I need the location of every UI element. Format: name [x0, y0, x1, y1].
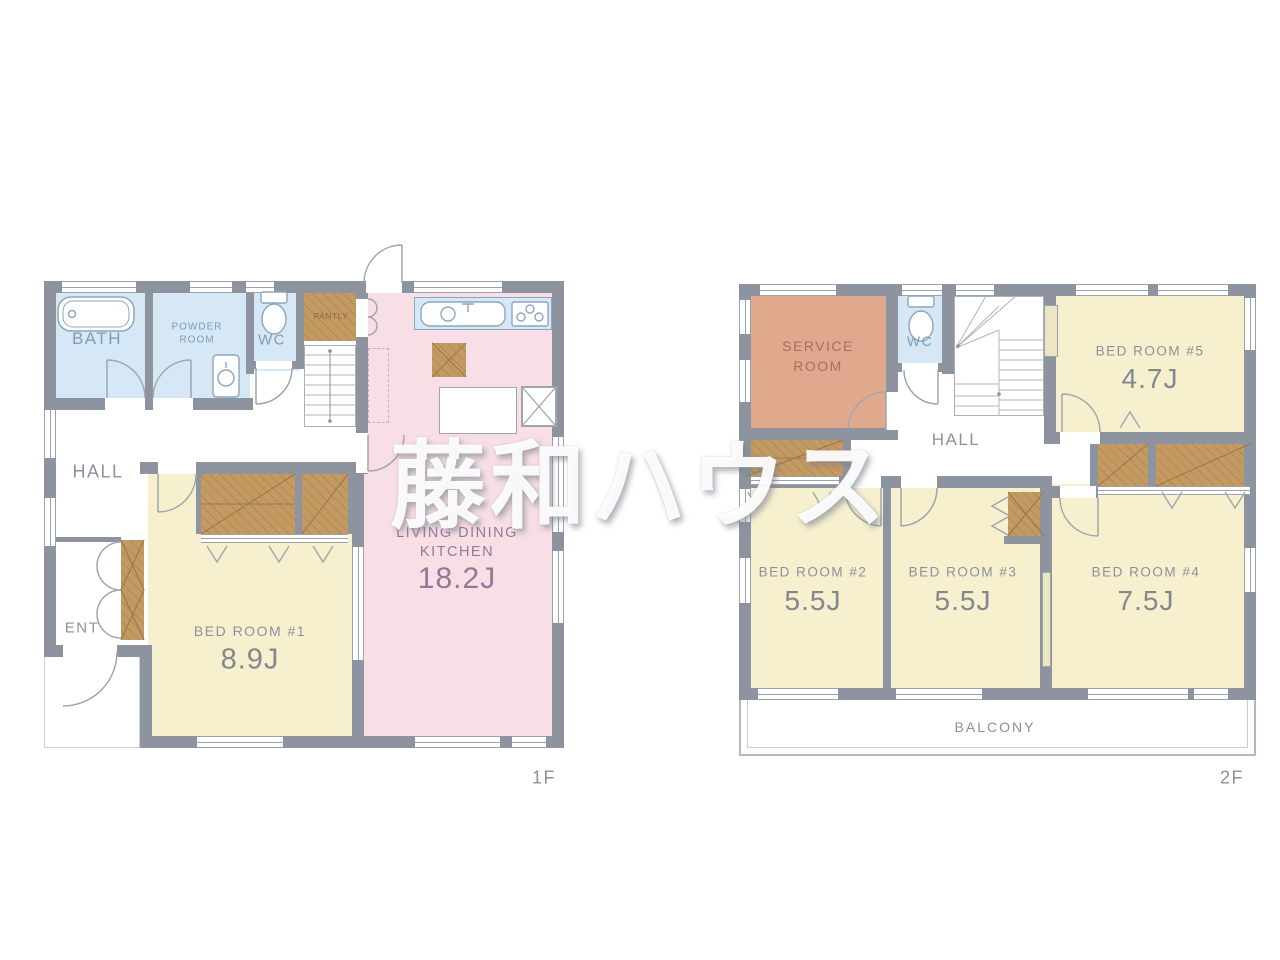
- closet-open-front: [1098, 486, 1250, 495]
- wc2-door-opening: [902, 363, 938, 372]
- wc-label-2f: WC: [907, 333, 933, 349]
- window: [1244, 298, 1256, 350]
- window: [896, 688, 982, 700]
- window: [1158, 284, 1228, 296]
- window: [739, 300, 751, 334]
- floor1-powder-room: [149, 289, 250, 402]
- floor-plan-canvas: BATH POWDER ROOM WC PANTLY HALL ENT BED …: [0, 0, 1280, 960]
- floor1-shoe-closet: [121, 540, 144, 640]
- bedroom1-name-label: BED ROOM #1: [194, 623, 306, 639]
- window: [512, 736, 546, 748]
- wc-label-1f: WC: [258, 332, 286, 349]
- bedroom5-name-label: BED ROOM #5: [1096, 344, 1205, 359]
- floor1-label: 1F: [532, 768, 556, 789]
- bedroom5-area-label: 4.7J: [1122, 363, 1179, 395]
- wall: [196, 474, 201, 534]
- window: [1076, 284, 1148, 296]
- floor1-bedroom1-closet-b: [302, 474, 348, 534]
- ldk-area-label: 18.2J: [418, 562, 496, 596]
- floor1-wc-room: [250, 289, 300, 371]
- balcony-label: BALCONY: [955, 719, 1036, 735]
- wall: [295, 474, 302, 534]
- powder-door-opening: [153, 398, 193, 410]
- floor1-kitchen-counter: [414, 297, 552, 330]
- bedroom1-sliding-door: [352, 547, 364, 660]
- bedroom3-door-opening: [901, 476, 937, 488]
- wall: [140, 645, 152, 748]
- entrance-door-opening: [63, 645, 117, 657]
- wall: [348, 474, 356, 534]
- wall: [44, 281, 56, 655]
- service-room-label-line1: SERVICE: [782, 338, 854, 354]
- window: [1244, 548, 1256, 592]
- floor2-wc-room: [894, 291, 946, 371]
- window: [739, 360, 751, 402]
- window: [739, 558, 751, 603]
- hall-label-1f: HALL: [72, 462, 123, 483]
- company-watermark: 藤和ハウス: [390, 409, 890, 548]
- window: [956, 284, 994, 296]
- bedroom2-area-label: 5.5J: [785, 585, 842, 617]
- floor1-bedroom1-closet-a: [201, 474, 295, 534]
- wall: [296, 281, 304, 369]
- bedroom1-area-label: 8.9J: [221, 644, 280, 677]
- floor2-staircase: [954, 296, 1044, 416]
- wall: [1004, 536, 1044, 544]
- bedroom1-door-opening: [158, 462, 196, 474]
- floor2-closet-small: [1098, 444, 1148, 486]
- window: [1194, 688, 1228, 700]
- bath-label: BATH: [72, 329, 122, 349]
- window: [552, 551, 564, 623]
- hall-label-2f: HALL: [932, 430, 981, 450]
- pantry-door-opening: [356, 299, 368, 337]
- wall: [1090, 444, 1098, 486]
- floor2-label: 2F: [1220, 768, 1244, 789]
- bedroom3-name-label: BED ROOM #3: [909, 565, 1018, 580]
- window: [1088, 688, 1188, 700]
- window: [62, 281, 136, 293]
- wall: [1148, 444, 1156, 486]
- kitchen-storage-box: [432, 343, 466, 377]
- hall-ldk-door-opening: [356, 433, 368, 473]
- bedroom2-name-label: BED ROOM #2: [759, 565, 868, 580]
- bedroom3-area-label: 5.5J: [935, 585, 992, 617]
- window: [760, 284, 836, 296]
- bedroom4-door-opening: [1060, 486, 1096, 498]
- window: [197, 736, 283, 748]
- pantry-label: PANTLY: [314, 311, 349, 321]
- wc-door-opening: [256, 361, 292, 369]
- floor1-entrance-porch: [44, 657, 140, 748]
- floor2-closet-wide: [1156, 444, 1250, 486]
- bedroom4-name-label: BED ROOM #4: [1092, 565, 1201, 580]
- window: [415, 736, 500, 748]
- powder-room-label-line1: POWDER: [172, 322, 223, 333]
- wall: [145, 289, 153, 402]
- closet-open-front: [201, 534, 348, 543]
- wall: [942, 284, 954, 374]
- window: [414, 281, 502, 293]
- pipe-space: [1042, 572, 1051, 667]
- bedroom5-shelf: [1044, 305, 1058, 357]
- entrance-label: ENT: [65, 620, 100, 637]
- window: [902, 284, 942, 296]
- bedroom5-door-opening: [1060, 432, 1100, 444]
- back-door-opening: [366, 281, 402, 293]
- planned-cabinet-outline: [368, 348, 389, 423]
- window: [758, 688, 838, 700]
- floor2-bedroom3-closet: [1008, 492, 1044, 536]
- service-room-label-line2: ROOM: [793, 358, 843, 374]
- window: [44, 498, 56, 546]
- wall: [44, 398, 253, 410]
- bedroom4-area-label: 7.5J: [1118, 585, 1175, 617]
- window: [246, 281, 274, 293]
- window: [190, 281, 232, 293]
- powder-room-label-line2: ROOM: [179, 335, 214, 346]
- window: [44, 410, 56, 458]
- floor1-staircase: [304, 345, 356, 427]
- bath-door-opening: [105, 398, 145, 410]
